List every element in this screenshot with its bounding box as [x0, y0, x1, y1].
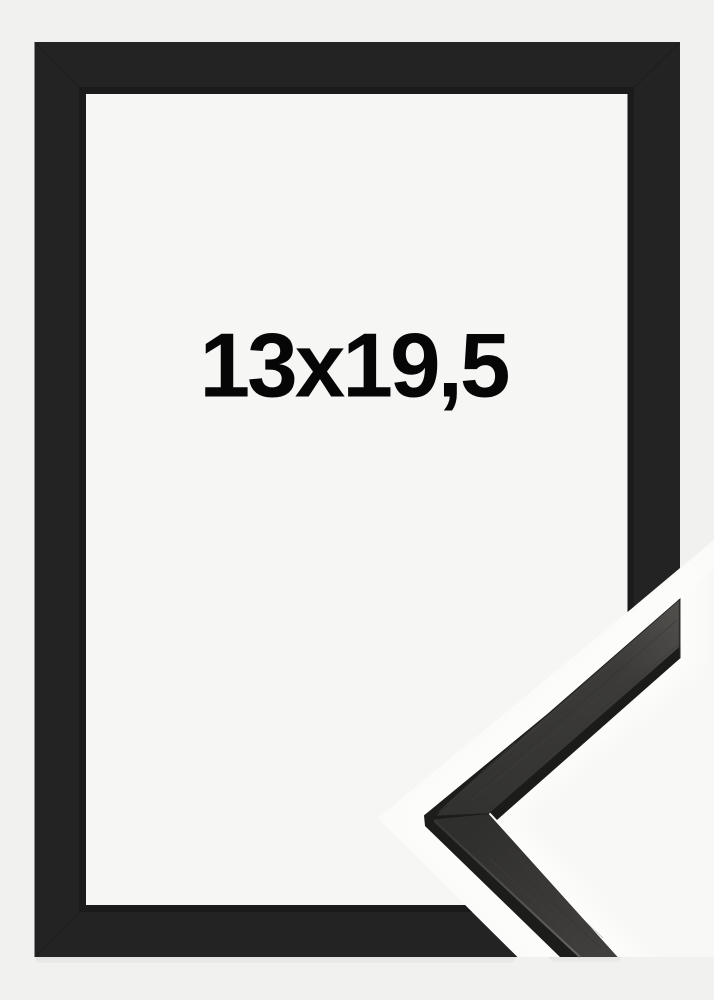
svg-text:13x19,5: 13x19,5	[200, 316, 509, 417]
